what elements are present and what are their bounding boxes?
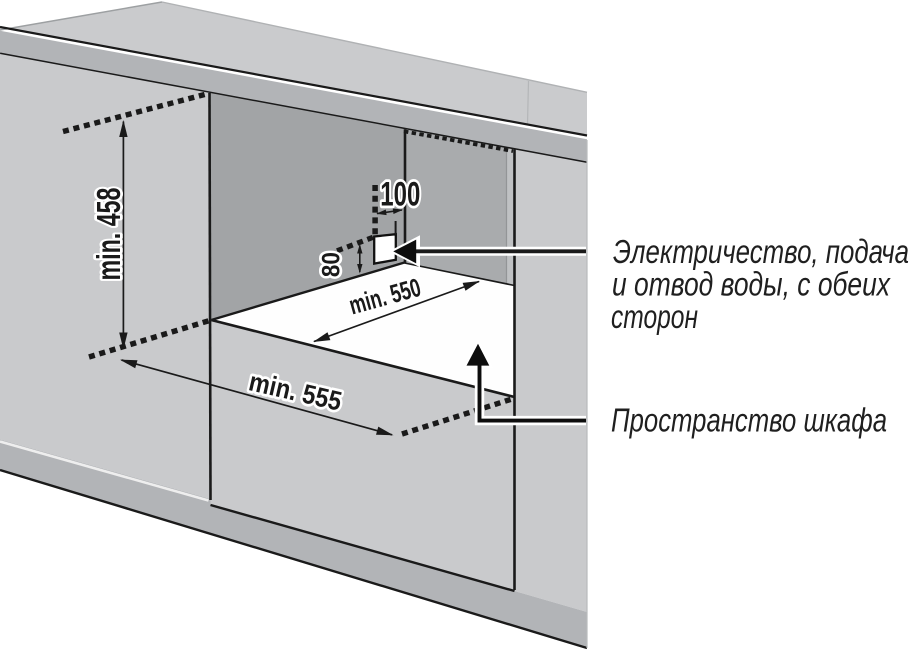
svg-text:min. 458: min. 458 xyxy=(90,187,127,280)
svg-text:сторон: сторон xyxy=(611,298,698,335)
svg-text:100: 100 xyxy=(380,176,420,214)
svg-text:Пространство шкафа: Пространство шкафа xyxy=(611,402,887,439)
svg-text:и отвод воды, с обеих: и отвод воды, с обеих xyxy=(612,266,891,303)
svg-text:Электричество, подача: Электричество, подача xyxy=(613,233,909,270)
svg-text:80: 80 xyxy=(317,252,345,277)
